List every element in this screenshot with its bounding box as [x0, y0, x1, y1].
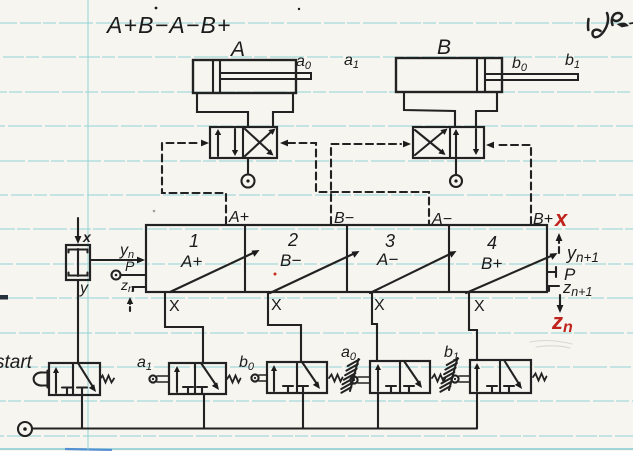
svg-text:B+: B+ — [481, 254, 502, 273]
svg-text:B+: B+ — [533, 211, 553, 228]
svg-text:A+: A+ — [180, 252, 202, 271]
svg-text:A+: A+ — [228, 209, 249, 226]
svg-text:A−: A− — [431, 211, 452, 228]
svg-text:A+B−A−B+: A+B−A−B+ — [105, 12, 232, 38]
svg-text:X: X — [169, 298, 180, 315]
svg-text:B−: B− — [334, 210, 354, 227]
svg-text:X: X — [374, 297, 385, 314]
svg-text:X: X — [474, 298, 485, 315]
svg-text:3: 3 — [385, 231, 395, 251]
svg-text:A−: A− — [376, 250, 398, 269]
svg-text:x: x — [554, 206, 568, 231]
svg-text:A: A — [229, 38, 245, 61]
svg-text:B: B — [437, 36, 451, 59]
svg-text:B−: B− — [280, 251, 301, 270]
svg-text:1: 1 — [189, 231, 199, 251]
svg-text:4: 4 — [487, 233, 497, 253]
svg-text:2: 2 — [287, 230, 298, 250]
svg-text:P: P — [125, 258, 135, 274]
svg-text:X: X — [271, 297, 282, 314]
svg-text:y: y — [79, 280, 89, 297]
svg-text:start: start — [0, 352, 33, 373]
svg-text:x: x — [82, 229, 92, 245]
